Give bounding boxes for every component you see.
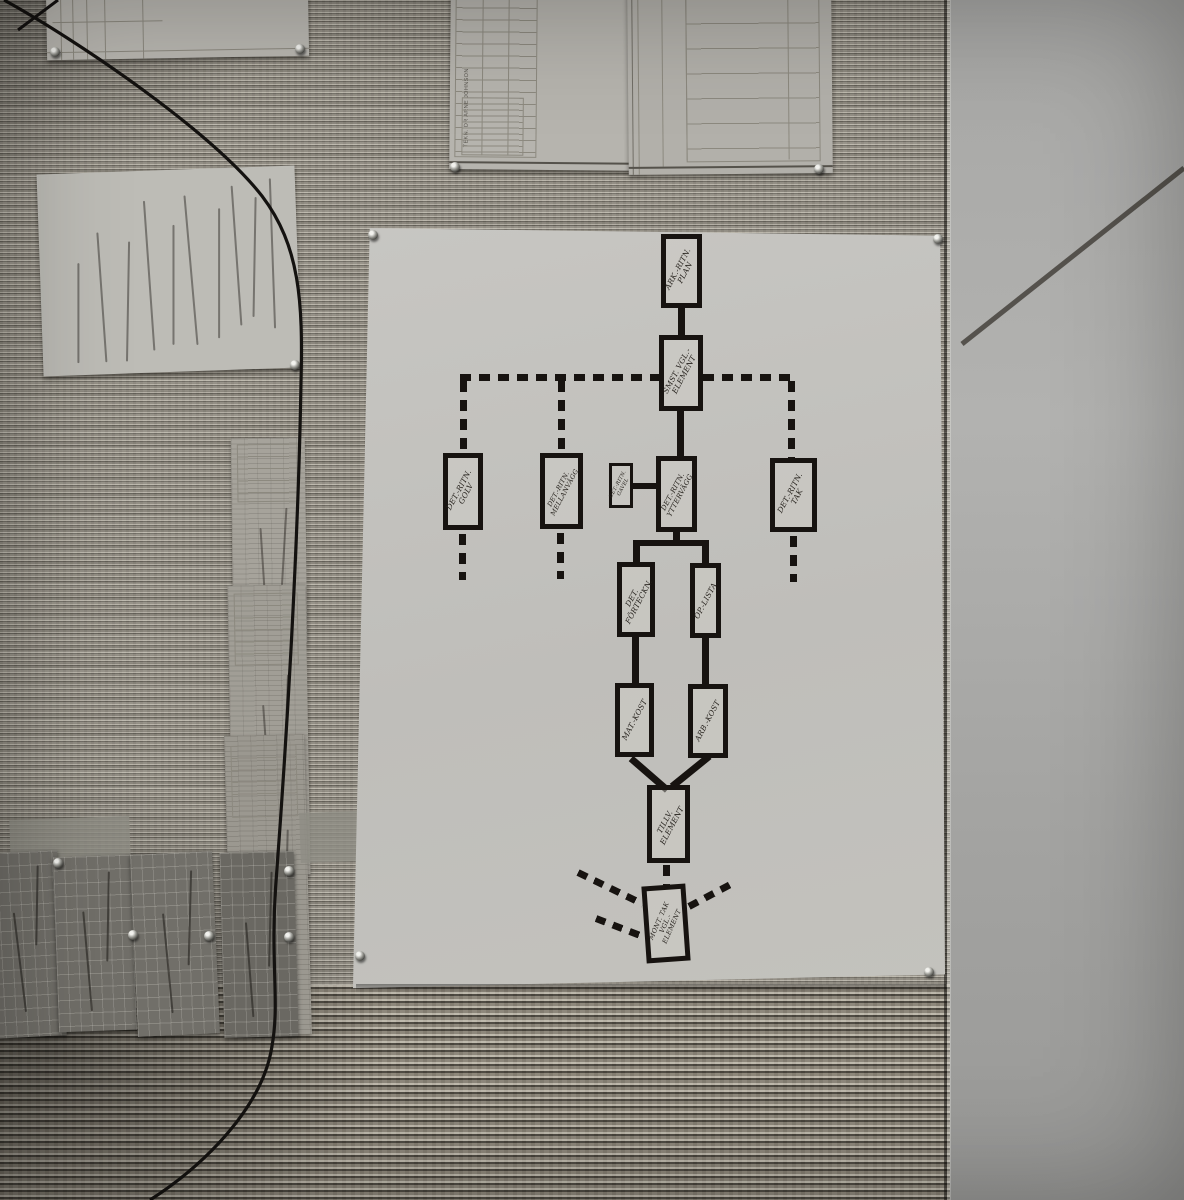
foreground-lines xyxy=(0,0,1184,1200)
cord-end xyxy=(18,0,58,30)
leaning-rod xyxy=(962,168,1184,344)
hanging-cord xyxy=(4,0,301,1200)
photo-wall-scene: TEKN. DR ARNE JOHNSON xyxy=(0,0,1184,1200)
